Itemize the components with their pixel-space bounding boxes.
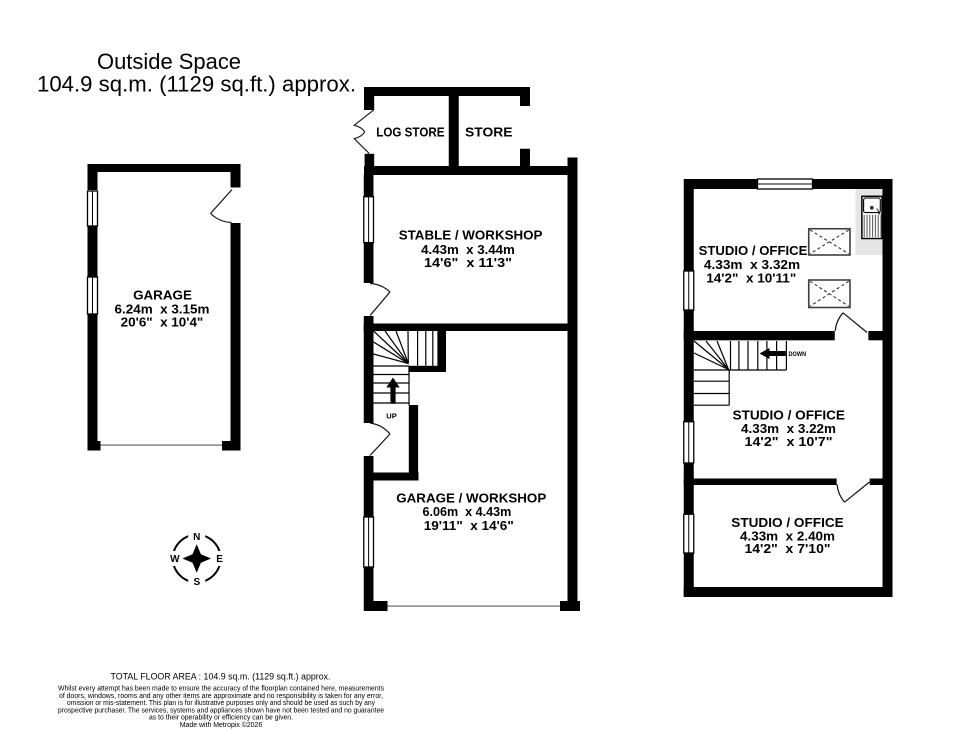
svg-text:14'2" x 10'11": 14'2" x 10'11": [706, 271, 796, 286]
svg-text:E: E: [216, 554, 223, 565]
svg-text:14'2" x 7'10": 14'2" x 7'10": [745, 541, 831, 556]
svg-text:Made with Metropix ©2026: Made with Metropix ©2026: [180, 721, 263, 729]
svg-text:20'6" x 10'4": 20'6" x 10'4": [121, 315, 204, 330]
svg-text:N: N: [193, 532, 200, 543]
svg-text:Whilst every attempt has been: Whilst every attempt has been made to en…: [58, 686, 384, 693]
svg-text:14'2" x 10'7": 14'2" x 10'7": [745, 434, 833, 449]
svg-text:STUDIO / OFFICE: STUDIO / OFFICE: [731, 515, 844, 530]
svg-text:STUDIO / OFFICE: STUDIO / OFFICE: [699, 243, 808, 258]
svg-text:104.9 sq.m. (1129 sq.ft.) appr: 104.9 sq.m. (1129 sq.ft.) approx.: [37, 72, 356, 97]
svg-text:DOWN: DOWN: [789, 351, 807, 358]
svg-text:6.06m x 4.43m: 6.06m x 4.43m: [423, 504, 512, 519]
svg-text:LOG STORE: LOG STORE: [376, 124, 445, 139]
svg-text:14'6" x 11'3": 14'6" x 11'3": [424, 255, 512, 270]
svg-text:of doors, windows, rooms and a: of doors, windows, rooms and any other i…: [59, 693, 383, 700]
svg-text:19'11" x 14'6": 19'11" x 14'6": [424, 518, 514, 533]
svg-text:S: S: [193, 577, 200, 588]
svg-text:4.33m x 3.32m: 4.33m x 3.32m: [704, 257, 800, 272]
svg-text:Outside Space: Outside Space: [97, 49, 241, 74]
svg-text:GARAGE: GARAGE: [133, 288, 192, 303]
svg-text:UP: UP: [386, 412, 396, 421]
svg-text:prospective purchaser. The ser: prospective purchaser. The services, sys…: [58, 707, 384, 714]
svg-text:STABLE / WORKSHOP: STABLE / WORKSHOP: [399, 228, 543, 243]
svg-text:W: W: [170, 554, 180, 565]
svg-text:omission or mis-statement. Thi: omission or mis-statement. This plan is …: [67, 700, 375, 707]
svg-text:STUDIO / OFFICE: STUDIO / OFFICE: [733, 407, 846, 422]
svg-text:as to their operability or eff: as to their operability or efficiency ca…: [149, 715, 293, 722]
svg-text:TOTAL FLOOR AREA : 104.9 sq.m.: TOTAL FLOOR AREA : 104.9 sq.m. (1129 sq.…: [111, 672, 331, 683]
svg-text:STORE: STORE: [465, 124, 513, 139]
